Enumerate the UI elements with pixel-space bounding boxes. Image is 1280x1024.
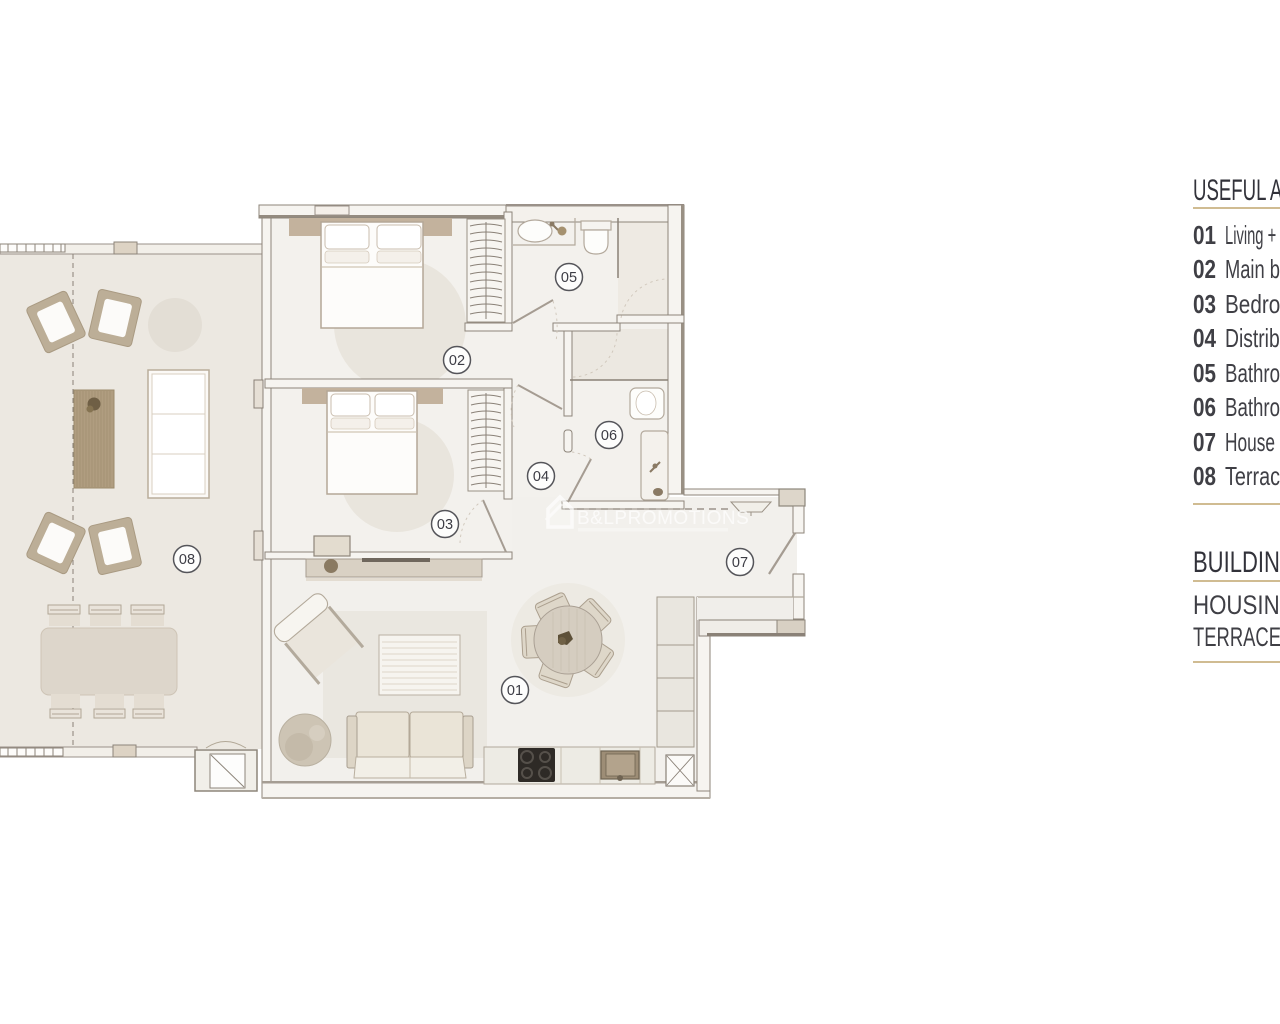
svg-text:02: 02 xyxy=(1193,254,1216,284)
svg-text:06: 06 xyxy=(601,428,617,444)
svg-text:USEFUL AREAS: USEFUL AREAS xyxy=(1193,174,1280,207)
svg-text:08: 08 xyxy=(179,552,195,568)
svg-text:05: 05 xyxy=(561,270,577,286)
svg-text:07: 07 xyxy=(732,555,748,571)
svg-text:07: 07 xyxy=(1193,427,1216,457)
svg-text:06: 06 xyxy=(1193,392,1216,422)
svg-text:02: 02 xyxy=(449,353,465,369)
svg-text:TERRACE: TERRACE xyxy=(1193,622,1280,652)
svg-text:03: 03 xyxy=(437,517,453,533)
svg-text:BUILDING: BUILDING xyxy=(1193,546,1280,579)
svg-text:04: 04 xyxy=(1193,323,1216,353)
svg-text:Living + kitchen: Living + kitchen xyxy=(1225,220,1280,250)
svg-text:HOUSING: HOUSING xyxy=(1193,590,1280,620)
svg-text:Terrace: Terrace xyxy=(1225,461,1280,491)
svg-text:08: 08 xyxy=(1193,461,1216,491)
svg-text:01: 01 xyxy=(507,683,523,699)
svg-text:Bathroom: Bathroom xyxy=(1225,358,1280,388)
svg-text:Main bedroom: Main bedroom xyxy=(1225,254,1280,284)
svg-text:B&LPROMOTIONS: B&LPROMOTIONS xyxy=(577,508,749,529)
svg-text:House entrance: House entrance xyxy=(1225,427,1280,457)
svg-text:Bedroom: Bedroom xyxy=(1225,289,1280,319)
svg-text:05: 05 xyxy=(1193,358,1216,388)
svg-text:04: 04 xyxy=(533,469,549,485)
svg-text:Distributor: Distributor xyxy=(1225,323,1280,353)
svg-text:03: 03 xyxy=(1193,289,1216,319)
svg-text:01: 01 xyxy=(1193,220,1216,250)
svg-text:Bathroom: Bathroom xyxy=(1225,392,1280,422)
